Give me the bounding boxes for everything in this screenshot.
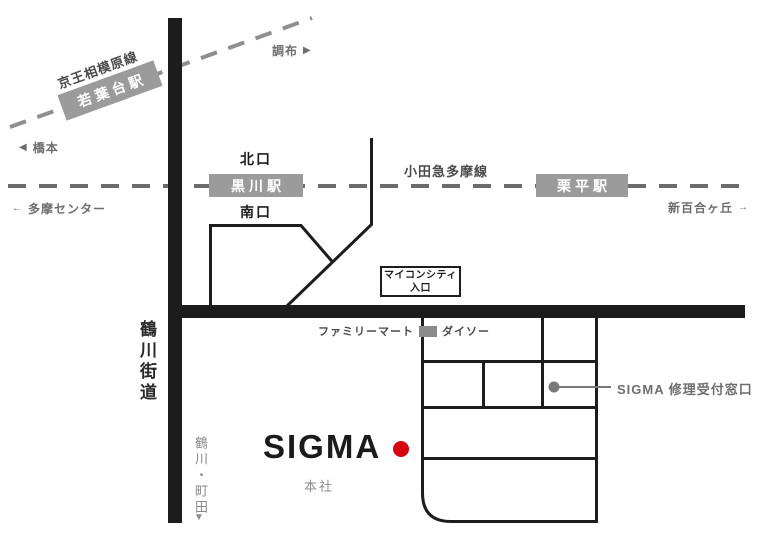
main-horizontal-road	[168, 305, 745, 318]
headquarters-label: 本社	[304, 476, 334, 495]
keio-railway-dashed-line	[10, 18, 312, 127]
kurihira-station-box: 栗平駅	[536, 174, 628, 197]
familymart-landmark: ファミリーマート	[318, 323, 430, 339]
daiso-square-icon	[426, 326, 437, 337]
odakyu-line-name: 小田急多摩線	[404, 161, 488, 180]
sigma-access-map: 京王相模原線 若葉台駅 ◀ 橋本 調布 ▶ 小田急多摩線 北口 黒川駅 南口 栗…	[0, 0, 760, 542]
hashimoto-label: 橋本	[33, 139, 59, 156]
right-arrow-icon: →	[738, 202, 749, 213]
south-exit-label: 南口	[240, 202, 272, 222]
kurokawa-station-box: 黒川駅	[209, 174, 303, 197]
tsurukawa-machida-direction: 鶴川・町田	[191, 436, 210, 516]
sigma-logo: SIGMA	[263, 428, 381, 466]
hashimoto-direction: ◀ 橋本	[19, 139, 59, 156]
tsurukawa-kaido-road	[168, 18, 182, 523]
repair-window-dot-marker	[549, 382, 560, 393]
shin-yurigaoka-label: 新百合ヶ丘	[668, 199, 733, 216]
north-exit-label: 北口	[240, 149, 272, 169]
familymart-label: ファミリーマート	[318, 323, 414, 339]
repair-window-label: SIGMA 修理受付窓口	[617, 379, 753, 398]
maicon-city-entrance-sign: マイコンシティ 入口	[380, 266, 461, 297]
street-line-station-east	[287, 138, 372, 306]
down-triangle-icon: ▼	[194, 512, 204, 523]
right-triangle-icon: ▶	[303, 45, 312, 56]
chofu-label: 調布	[272, 42, 298, 59]
daiso-label: ダイソー	[442, 323, 490, 339]
left-triangle-icon: ◀	[19, 142, 28, 153]
daiso-landmark: ダイソー	[426, 323, 490, 339]
maicon-city-sign-line1: マイコンシティ	[382, 269, 459, 282]
maicon-city-sign-line2: 入口	[382, 282, 459, 295]
chofu-direction: 調布 ▶	[272, 42, 312, 59]
building-block-dividers	[421, 318, 598, 459]
kurihira-station-label: 栗平駅	[557, 176, 611, 196]
building-block-outline	[423, 317, 597, 522]
shin-yurigaoka-direction: 新百合ヶ丘 →	[668, 199, 749, 216]
sigma-hq-red-marker	[393, 441, 409, 457]
tama-center-direction: ← 多摩センター	[12, 200, 106, 217]
tsurukawa-kaido-label: 鶴川街道	[134, 320, 159, 404]
kurokawa-station-label: 黒川駅	[231, 176, 285, 196]
left-arrow-icon: ←	[12, 203, 23, 214]
tama-center-label: 多摩センター	[28, 200, 106, 217]
street-line-south-exit	[211, 226, 334, 307]
